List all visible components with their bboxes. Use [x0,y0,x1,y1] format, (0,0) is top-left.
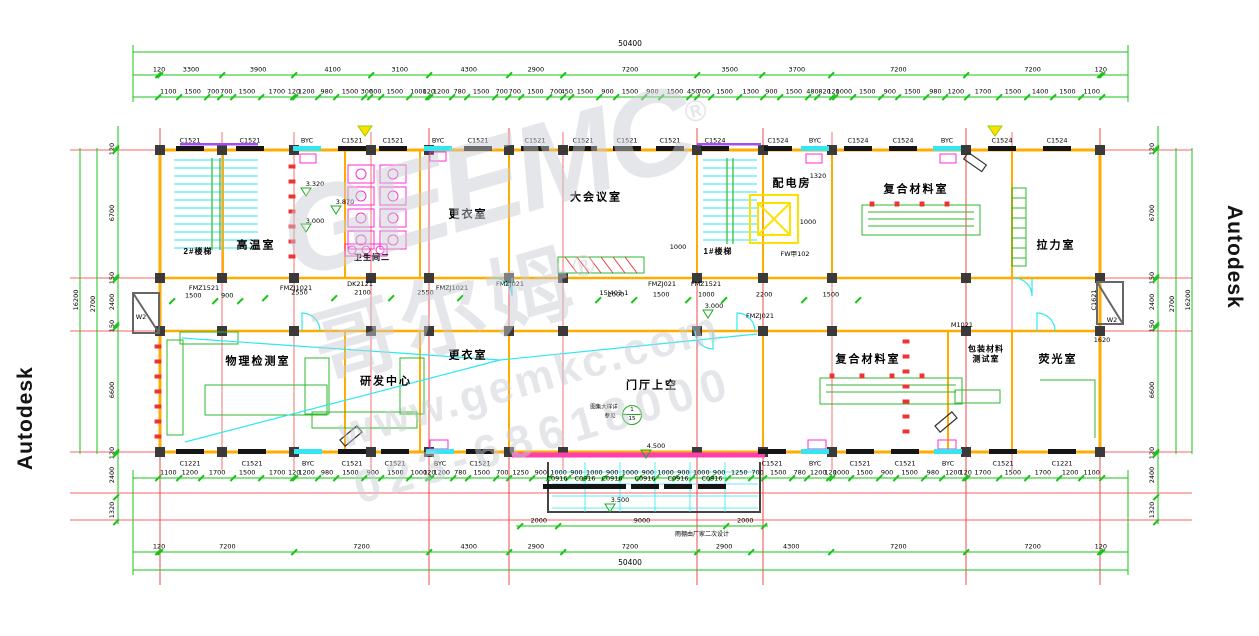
plan-linework [0,0,1259,636]
column-block [366,326,376,336]
column-block [217,273,227,283]
walls-orange [160,150,1100,452]
stair-rails [212,158,733,250]
column-block [289,326,299,336]
column-block [155,273,165,283]
red-hatch-marks [155,165,949,438]
column-block [558,145,568,155]
column-block [504,145,514,155]
column-block [424,326,434,336]
column-block [758,326,768,336]
column-block [289,145,299,155]
atrium-lines [182,278,1055,442]
column-block [758,145,768,155]
canopy [512,455,765,512]
column-block [961,326,971,336]
column-block [366,447,376,457]
column-block [217,447,227,457]
column-block [1095,145,1105,155]
column-block [155,145,165,155]
elevator-shaft [750,195,798,243]
column-block [289,273,299,283]
column-block [692,145,702,155]
column-block [366,145,376,155]
column-block [217,326,227,336]
dimension-lines-green [80,45,1192,575]
column-block [1095,447,1105,457]
column-block [366,273,376,283]
column-block [692,273,702,283]
column-block [217,145,227,155]
cad-floorplan-canvas: { "watermarks": { "left_vertical": "Auto… [0,0,1259,636]
column-block [827,326,837,336]
stair-2-treads [174,160,258,248]
column-block [289,447,299,457]
entry-triangles [358,126,1002,136]
grid-lines-red [70,128,1192,585]
column-block [961,447,971,457]
column-block [558,273,568,283]
column-block [424,273,434,283]
column-block [827,145,837,155]
door-leaves [340,152,986,446]
column-block [424,145,434,155]
column-block [558,326,568,336]
column-block [758,273,768,283]
column-block [504,326,514,336]
column-block [155,447,165,457]
stair-1-treads [703,160,757,240]
toilet-fixtures [345,165,406,256]
columns [155,145,1105,457]
column-block [961,273,971,283]
column-block [1095,326,1105,336]
column-block [827,447,837,457]
w2-windows [133,282,1123,333]
lintel-strips [180,143,761,146]
column-block [692,326,702,336]
column-block [827,273,837,283]
